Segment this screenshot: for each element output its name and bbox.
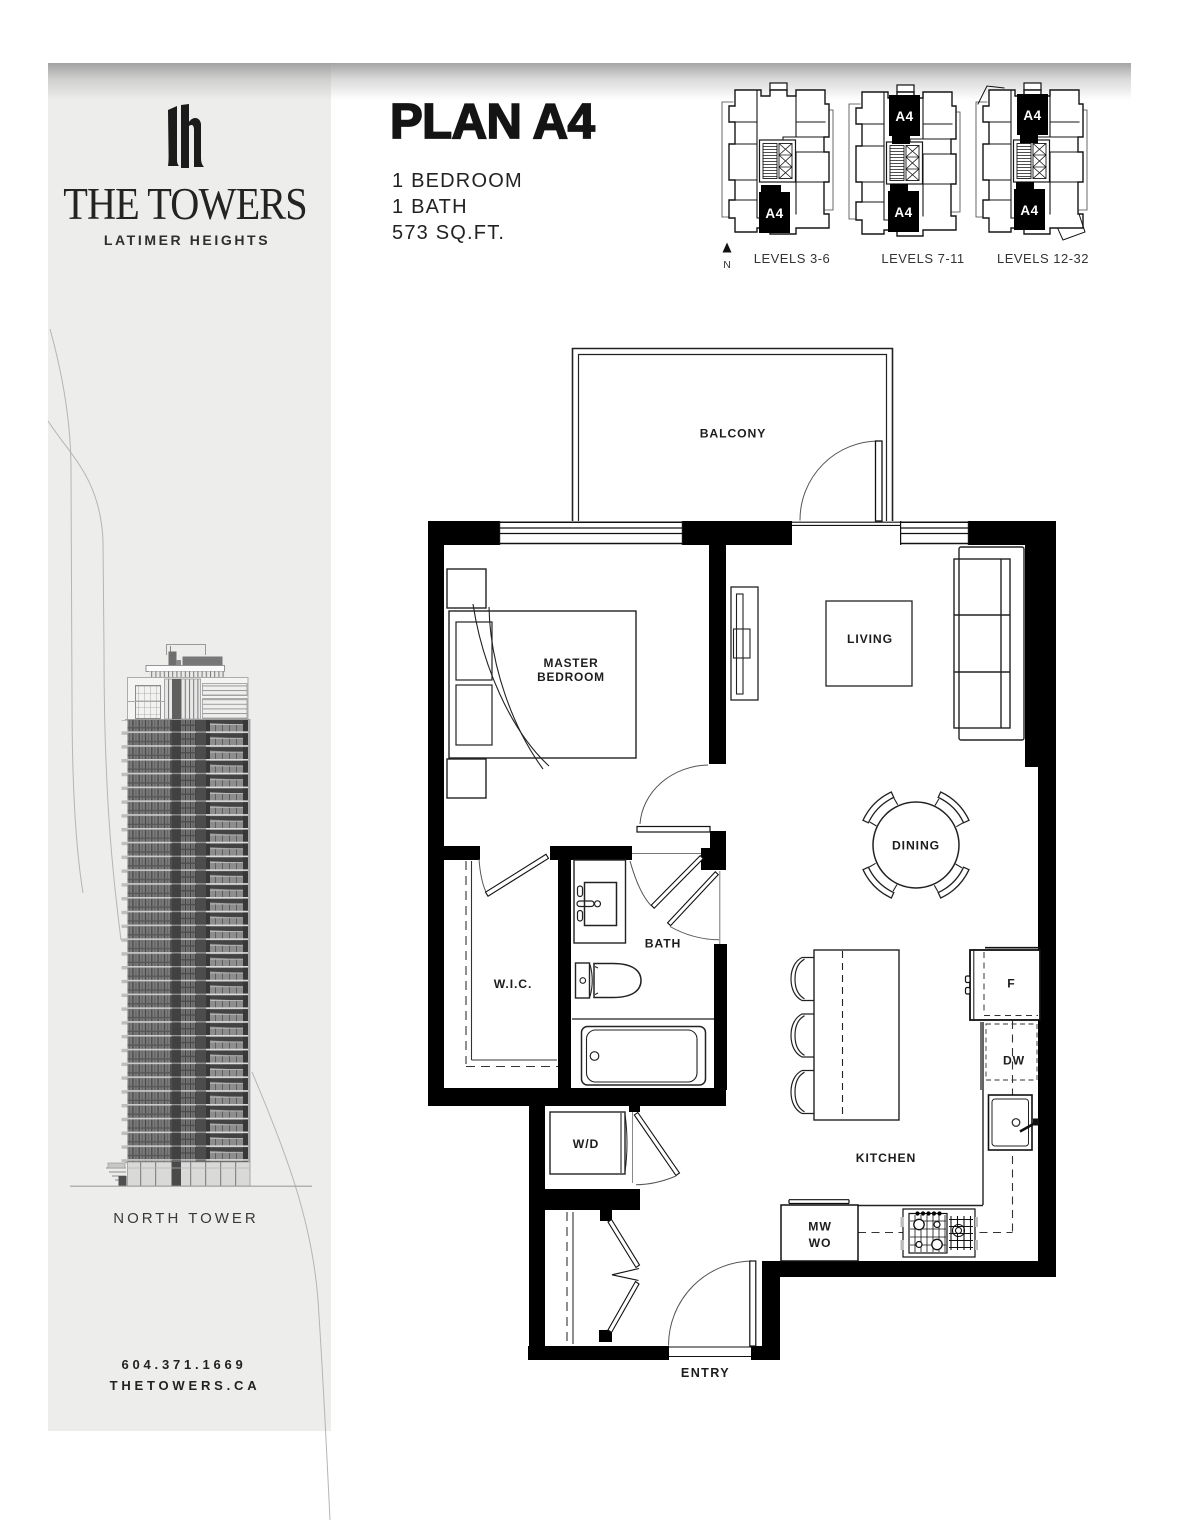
svg-text:DW: DW xyxy=(1003,1054,1025,1068)
svg-text:LEVELS 7-11: LEVELS 7-11 xyxy=(881,251,964,266)
svg-text:BALCONY: BALCONY xyxy=(700,427,767,441)
svg-text:ENTRY: ENTRY xyxy=(681,1366,730,1380)
svg-text:N: N xyxy=(723,259,731,271)
svg-text:BATH: BATH xyxy=(645,937,682,951)
svg-text:W/D: W/D xyxy=(573,1137,599,1151)
svg-text:DINING: DINING xyxy=(892,839,940,853)
svg-text:LEVELS 3-6: LEVELS 3-6 xyxy=(754,251,831,266)
svg-text:LIVING: LIVING xyxy=(847,632,893,646)
svg-text:KITCHEN: KITCHEN xyxy=(856,1151,916,1165)
svg-text:WO: WO xyxy=(809,1236,832,1250)
svg-text:MASTER: MASTER xyxy=(543,656,598,670)
svg-text:LEVELS 12-32: LEVELS 12-32 xyxy=(997,251,1089,266)
svg-text:MW: MW xyxy=(808,1220,831,1234)
svg-text:W.I.C.: W.I.C. xyxy=(494,977,533,991)
svg-text:BEDROOM: BEDROOM xyxy=(537,670,605,684)
svg-text:F: F xyxy=(1007,977,1014,991)
